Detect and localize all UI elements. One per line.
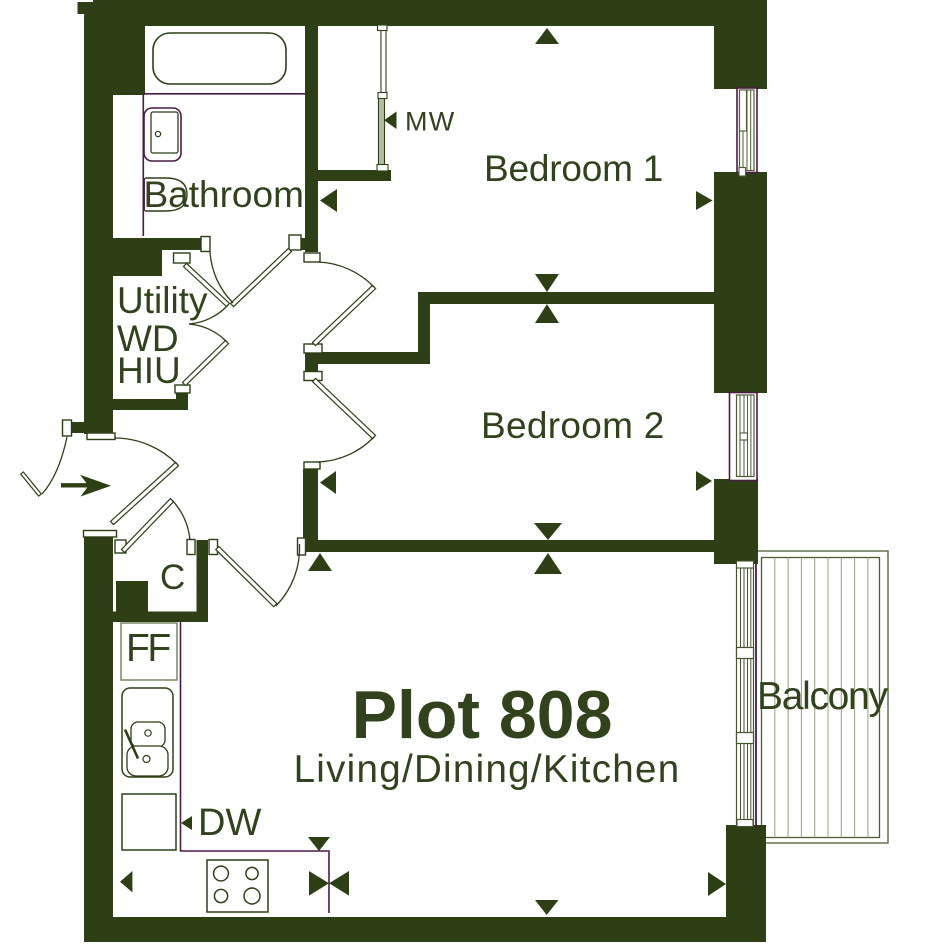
svg-text:Living/Dining/Kitchen: Living/Dining/Kitchen	[294, 748, 681, 791]
svg-text:FF: FF	[126, 627, 170, 670]
svg-text:C: C	[160, 558, 185, 597]
svg-text:Utility: Utility	[117, 280, 208, 321]
svg-text:Plot 808: Plot 808	[352, 677, 613, 753]
svg-text:DW: DW	[198, 802, 261, 844]
svg-text:Bedroom 2: Bedroom 2	[481, 405, 665, 446]
svg-text:Bedroom 1: Bedroom 1	[484, 148, 663, 189]
svg-text:MW: MW	[405, 107, 455, 137]
svg-text:Bathroom: Bathroom	[144, 174, 304, 215]
svg-text:Balcony: Balcony	[757, 675, 888, 718]
svg-text:HIU: HIU	[117, 350, 181, 391]
